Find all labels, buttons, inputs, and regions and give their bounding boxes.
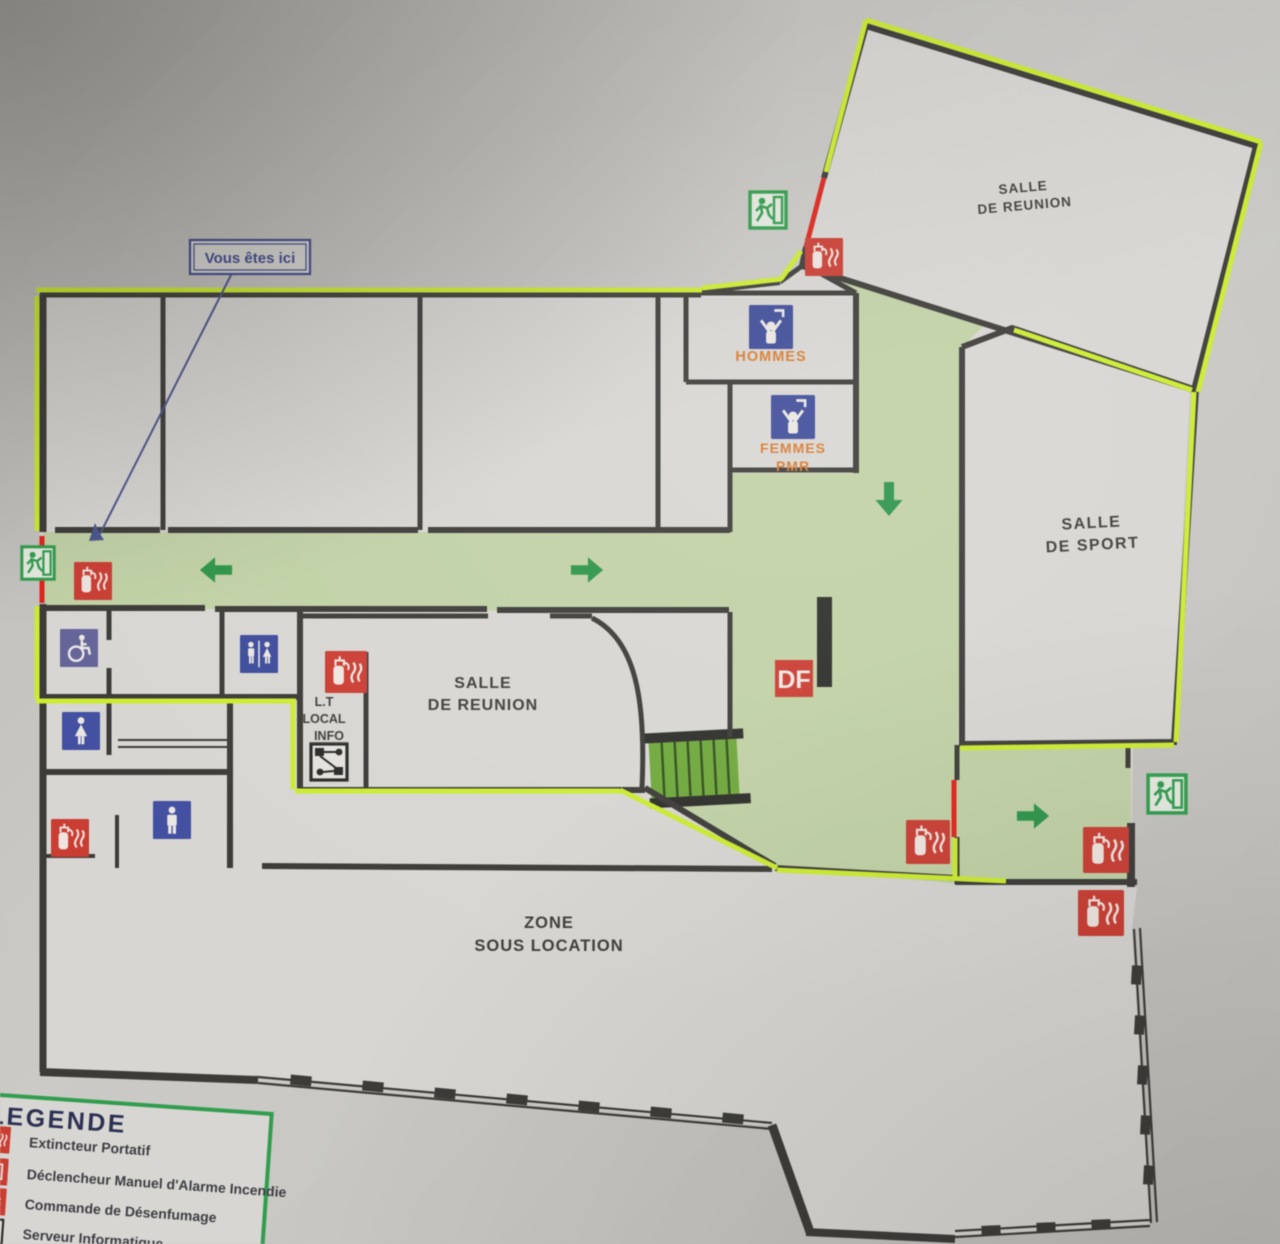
svg-text:SOUS LOCATION: SOUS LOCATION [474, 937, 623, 955]
evacuation-plan-photo: DF SALLE DE REUNION SALLE DE SPORT SALLE… [0, 0, 1280, 1244]
wheelchair-accessible-icon [60, 629, 98, 667]
extinguisher-icon [325, 651, 367, 693]
df-label: DF [777, 666, 810, 694]
room-label-sport: SALLE [1061, 513, 1122, 533]
extinguisher-icon [1078, 890, 1124, 936]
extinguisher-icon [805, 238, 843, 276]
emergency-exit-icon [1148, 775, 1186, 813]
svg-text:DE REUNION: DE REUNION [428, 697, 538, 714]
label-hommes: HOMMES [735, 349, 806, 365]
emergency-exit-icon [22, 547, 54, 579]
toilets-icon [240, 635, 278, 673]
room-label-meeting-mid: SALLE [454, 675, 511, 692]
extinguisher-icon [51, 819, 89, 857]
you-are-here-label: Vous êtes ici [205, 250, 296, 267]
server-icon [311, 744, 347, 780]
extinguisher-icon [1083, 827, 1129, 873]
extinguisher-icon [74, 562, 112, 600]
label-lt-local: L.T [315, 695, 334, 709]
smoke-control-marker: DF [775, 660, 813, 697]
extinguisher-icon [0, 1125, 11, 1154]
svg-text:PMR: PMR [776, 458, 810, 474]
legend: LEGENDE Extincteur Portatif Déclencheur … [0, 1092, 292, 1244]
label-femmes: FEMMES [760, 440, 826, 456]
svg-text:INFO: INFO [314, 729, 344, 743]
men-toilet-icon [153, 801, 191, 839]
floor-plan: DF SALLE DE REUNION SALLE DE SPORT SALLE… [0, 0, 1280, 1244]
women-toilet-icon [62, 712, 100, 750]
pillar [817, 597, 832, 687]
emergency-exit-icon [750, 192, 786, 228]
server-icon [0, 1218, 3, 1244]
svg-text:LOCAL: LOCAL [302, 712, 345, 726]
mens-shower-icon [749, 305, 793, 349]
womens-shower-icon [771, 395, 815, 439]
room-label-zone: ZONE [524, 914, 574, 932]
extinguisher-icon [906, 820, 950, 864]
